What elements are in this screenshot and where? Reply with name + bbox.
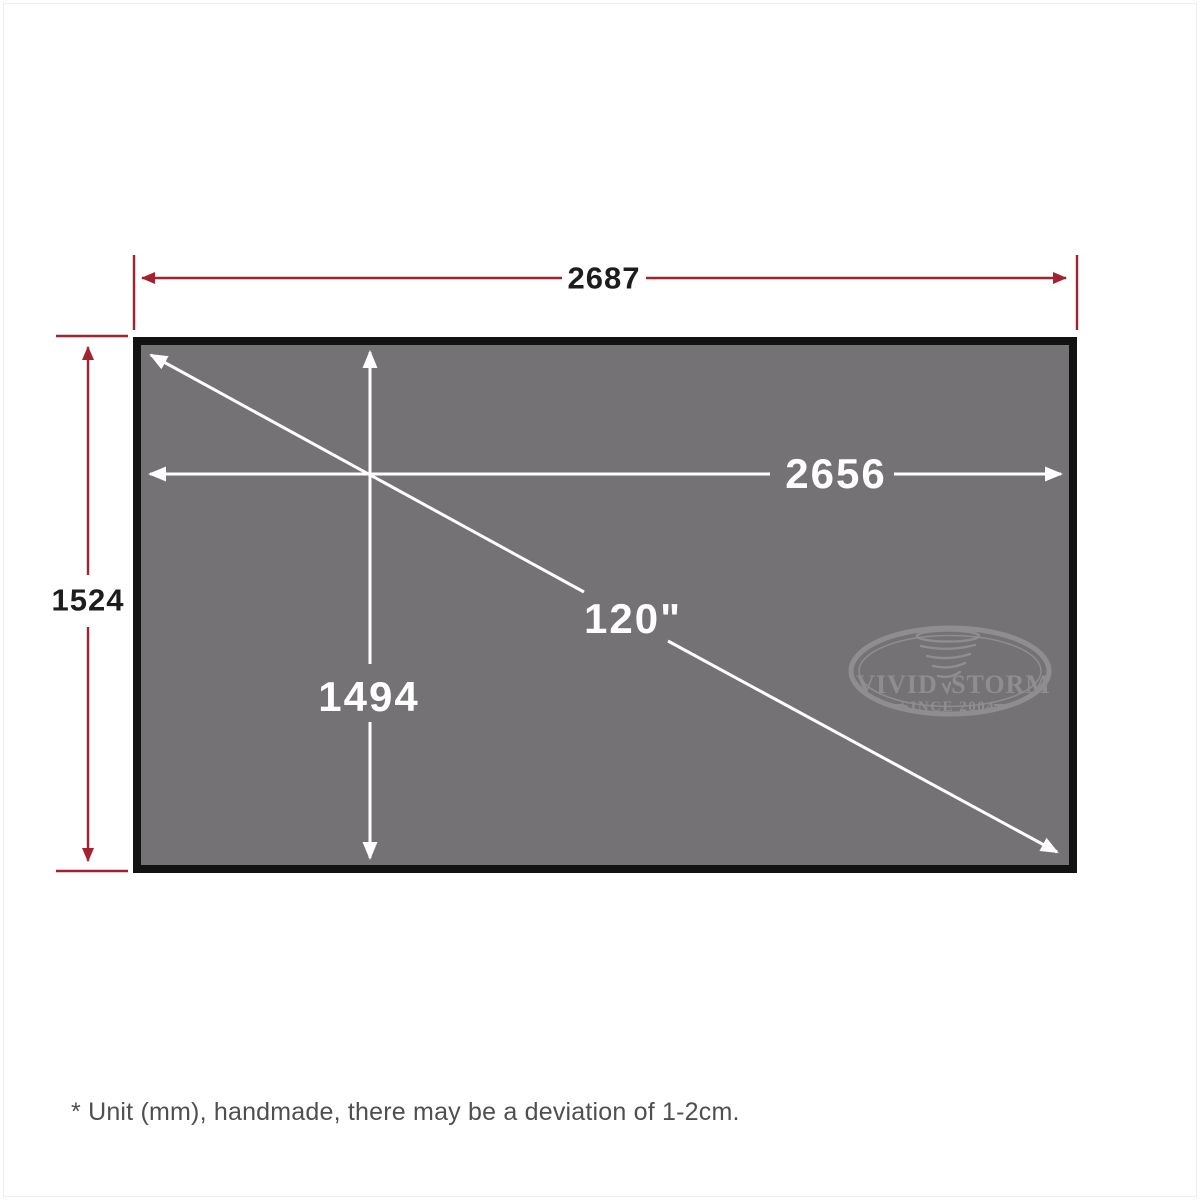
logo-tagline: SINCE 2004 xyxy=(901,699,996,715)
logo-brand-left: VIVID xyxy=(856,670,938,699)
vividstorm-logo: VIVID STORM SINCE 2004 xyxy=(830,615,1070,730)
viewable-height-label: 1494 xyxy=(318,676,419,718)
logo-brand-right: STORM xyxy=(951,670,1051,699)
unit-footnote: * Unit (mm), handmade, there may be a de… xyxy=(71,1098,740,1127)
viewable-width-label: 2656 xyxy=(785,453,886,495)
diagonal-size-label: 120" xyxy=(584,598,682,640)
outer-width-label: 2687 xyxy=(568,263,641,294)
outer-height-label: 1524 xyxy=(52,585,125,616)
product-dimension-page: 2687 1524 2656 1494 120" VIVID STORM SIN… xyxy=(0,0,1200,1200)
